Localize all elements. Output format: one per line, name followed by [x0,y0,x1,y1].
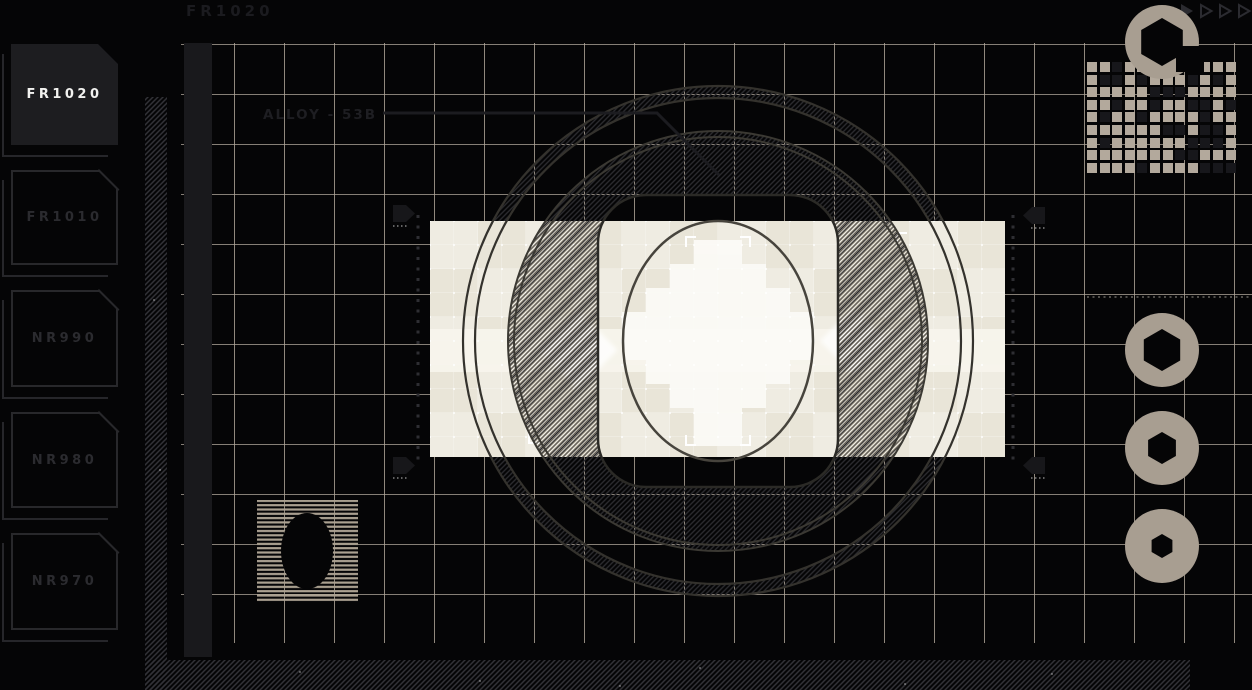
qr-cell [1213,125,1223,135]
qr-cell [1112,125,1122,135]
qr-cell [1112,163,1122,173]
qr-cell [1150,100,1160,110]
qr-cell [1150,150,1160,160]
qr-cell [1188,125,1198,135]
sidebar-item-fr1010[interactable]: FR1010 [11,170,118,265]
qr-cell [1213,138,1223,148]
qr-cell [1200,112,1210,122]
qr-cell [1226,125,1236,135]
qr-cell [1125,150,1135,160]
qr-cell [1200,163,1210,173]
qr-cell [1213,100,1223,110]
qr-cell [1226,87,1236,97]
qr-cell [1175,150,1185,160]
qr-cell [1100,62,1110,72]
qr-cell [1150,125,1160,135]
qr-cell [1175,100,1185,110]
qr-cell [1150,163,1160,173]
qr-cell [1226,112,1236,122]
qr-cell [1200,100,1210,110]
qr-cell [1100,163,1110,173]
sidebar-item-nr980[interactable]: NR980 [11,412,118,508]
qr-cell [1100,75,1110,85]
sidebar-item-label: FR1020 [26,87,102,102]
qr-cell [1213,75,1223,85]
sidebar-item-label: FR1010 [26,210,102,225]
qr-cell [1226,100,1236,110]
qr-cell [1125,100,1135,110]
qr-cell [1100,150,1110,160]
qr-cell [1188,150,1198,160]
qr-cell [1226,62,1236,72]
qr-cell [1213,150,1223,160]
qr-cell [1163,125,1173,135]
qr-cell [1137,125,1147,135]
sidebar: FR1020 FR1010 NR990 NR980 NR970 [0,0,130,690]
qr-cell [1150,112,1160,122]
qr-cell [1100,87,1110,97]
qr-cell [1188,87,1198,97]
qr-cell [1112,100,1122,110]
sidebar-item-fr1020[interactable]: FR1020 [11,44,118,145]
qr-cell [1112,138,1122,148]
qr-cell [1100,138,1110,148]
qr-cell [1226,150,1236,160]
qr-cell [1087,100,1097,110]
bolt-ring-notched-icon [1120,0,1204,84]
qr-cell [1200,87,1210,97]
qr-cell [1200,150,1210,160]
qr-cell [1175,112,1185,122]
qr-cell [1163,87,1173,97]
qr-cell [1112,112,1122,122]
bolt-ring-icon [1120,406,1204,490]
hatch-region [500,123,936,559]
play-outline-icon[interactable] [1218,3,1233,19]
qr-cell [1112,87,1122,97]
qr-cell [1175,138,1185,148]
qr-cell [1125,163,1135,173]
bolt-ring-icon [1120,308,1204,392]
qr-cell [1100,100,1110,110]
qr-cell [1188,112,1198,122]
qr-cell [1163,112,1173,122]
qr-cell [1175,163,1185,173]
qr-cell [1226,138,1236,148]
qr-cell [1137,100,1147,110]
qr-cell [1137,112,1147,122]
bolt-ring-icon [1120,504,1204,588]
qr-cell [1125,87,1135,97]
qr-cell [1087,125,1097,135]
qr-cell [1188,100,1198,110]
qr-cell [1226,75,1236,85]
striped-swatch [257,500,358,602]
sidebar-item-label: NR990 [32,331,98,346]
qr-cell [1112,150,1122,160]
qr-cell [1137,150,1147,160]
qr-cell [1087,87,1097,97]
qr-cell [1087,112,1097,122]
qr-cell [1188,163,1198,173]
sidebar-item-label: NR970 [32,574,98,589]
qr-cell [1175,87,1185,97]
qr-cell [1200,138,1210,148]
qr-cell [1163,100,1173,110]
qr-cell [1137,163,1147,173]
qr-cell [1087,163,1097,173]
qr-cell [1226,163,1236,173]
qr-cell [1087,150,1097,160]
qr-cell [1125,112,1135,122]
hatch-strip-left [145,97,167,690]
qr-cell [1175,125,1185,135]
qr-cell [1137,87,1147,97]
qr-cell [1150,87,1160,97]
qr-cell [1100,112,1110,122]
qr-cell [1163,163,1173,173]
qr-cell [1125,125,1135,135]
qr-cell [1200,125,1210,135]
frame-bar [184,43,212,657]
qr-cell [1087,62,1097,72]
alloy-label: ALLOY - 53B [263,107,377,123]
qr-cell [1163,150,1173,160]
qr-cell [1213,112,1223,122]
sidebar-item-nr990[interactable]: NR990 [11,290,118,387]
qr-cell [1213,87,1223,97]
qr-cell [1188,138,1198,148]
qr-cell [1125,138,1135,148]
qr-cell [1087,75,1097,85]
sidebar-item-label: NR980 [32,453,98,468]
page-title: FR1020 [186,2,274,20]
qr-cell [1087,138,1097,148]
qr-cell [1213,163,1223,173]
play-outline-icon[interactable] [1237,3,1252,19]
qr-cell [1150,138,1160,148]
qr-cell [1163,138,1173,148]
qr-cell [1137,138,1147,148]
qr-cell [1213,62,1223,72]
qr-cell [1100,125,1110,135]
hatch-band-bottom [145,660,1190,690]
sidebar-item-nr970[interactable]: NR970 [11,533,118,630]
schematic-canvas: ALLOY - 53B [0,0,1252,690]
